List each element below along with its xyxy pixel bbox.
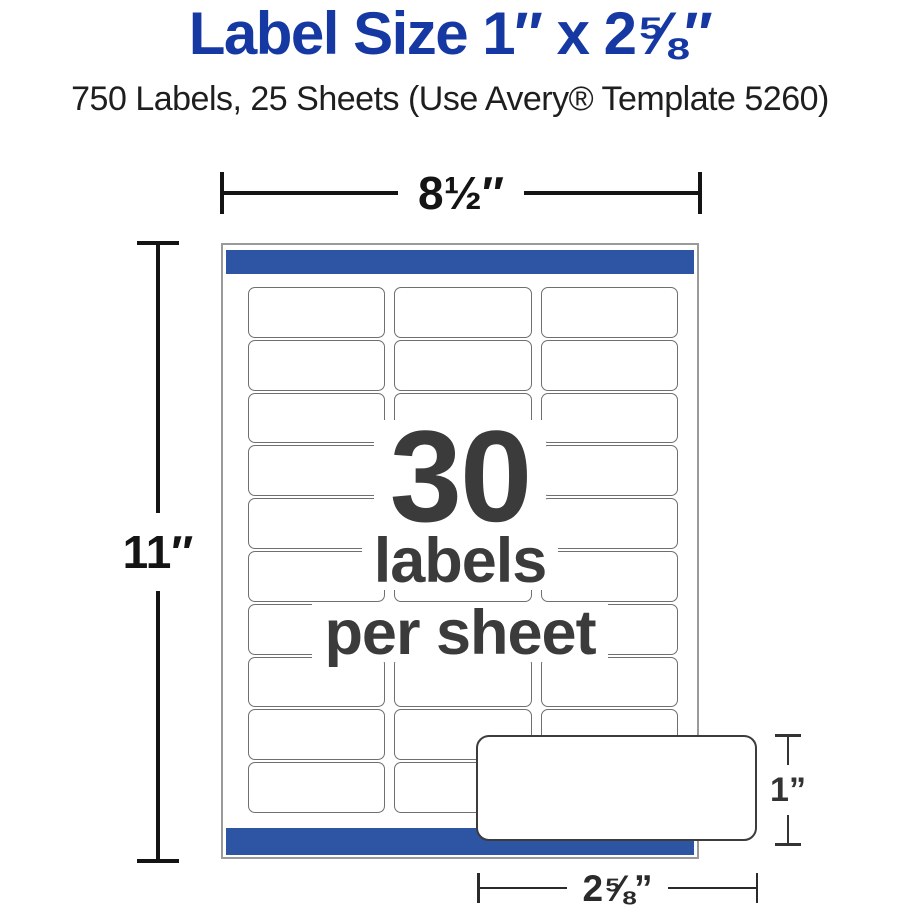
label-cell bbox=[248, 709, 385, 760]
label-height-value: 1” bbox=[770, 765, 806, 815]
labels-caption-line: labels bbox=[221, 532, 699, 590]
dimension-line bbox=[787, 815, 790, 843]
sheet-top-margin-bar bbox=[226, 250, 694, 274]
sheet-height-value: 11″ bbox=[123, 513, 194, 591]
label-cell bbox=[394, 287, 531, 338]
label-cell bbox=[541, 340, 678, 391]
page-title: Label Size 1″ x 2⅝″ bbox=[0, 2, 900, 66]
sheet-height-dimension: 11″ bbox=[116, 241, 200, 863]
labels-count: 30 bbox=[374, 420, 547, 532]
labels-count-overlay: 30 labels per sheet bbox=[221, 420, 699, 662]
labels-word: labels bbox=[362, 532, 559, 590]
subtitle: 750 Labels, 25 Sheets (Use Avery® Templa… bbox=[0, 80, 900, 118]
label-cell bbox=[248, 340, 385, 391]
per-sheet-caption-line: per sheet bbox=[221, 604, 699, 662]
label-width-dimension: 2⅝” bbox=[477, 867, 758, 909]
dimension-line bbox=[156, 245, 160, 513]
sheet-width-dimension: 8½″ bbox=[220, 170, 702, 216]
sheet-width-value: 8½″ bbox=[398, 170, 524, 216]
dimension-line bbox=[156, 591, 160, 859]
dimension-tick bbox=[698, 172, 702, 214]
label-cell bbox=[541, 287, 678, 338]
dimension-line bbox=[668, 887, 755, 890]
dimension-line bbox=[787, 737, 790, 765]
dimension-line bbox=[224, 191, 398, 195]
per-sheet-word: per sheet bbox=[312, 604, 607, 662]
dimension-tick bbox=[775, 843, 801, 846]
dimension-line bbox=[524, 191, 698, 195]
dimension-tick bbox=[137, 859, 179, 863]
labels-count-line: 30 bbox=[221, 420, 699, 532]
dimension-line bbox=[480, 887, 567, 890]
label-cell bbox=[248, 287, 385, 338]
label-cell bbox=[394, 340, 531, 391]
label-height-dimension: 1” bbox=[766, 734, 810, 846]
dimension-tick bbox=[756, 873, 759, 903]
label-width-value: 2⅝” bbox=[567, 870, 669, 907]
enlarged-label bbox=[476, 735, 757, 841]
label-cell bbox=[248, 762, 385, 813]
